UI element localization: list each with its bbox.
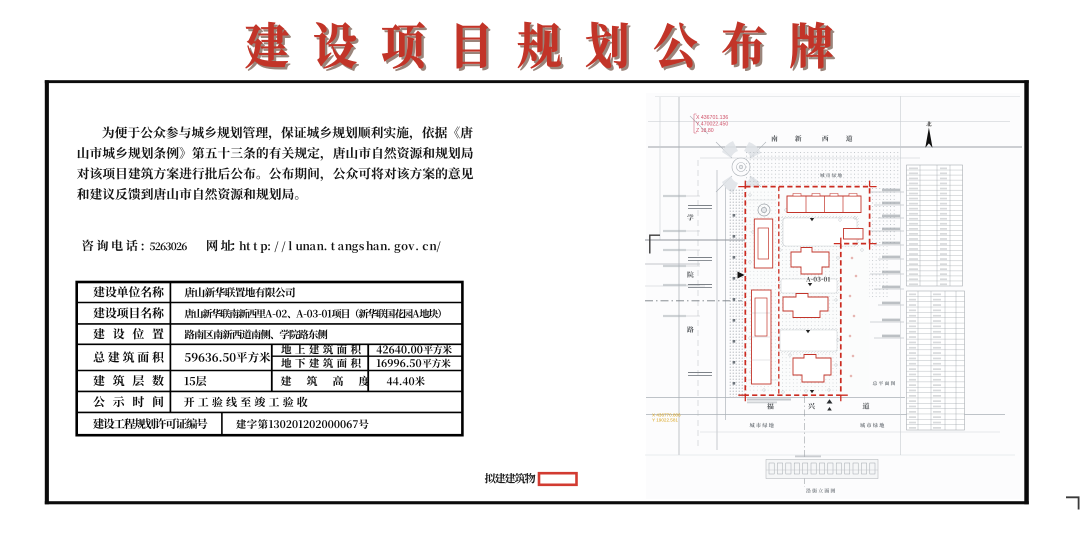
svg-text:Z 18.80: Z 18.80 xyxy=(696,128,714,134)
svg-text:Y 470022.450: Y 470022.450 xyxy=(696,121,728,127)
svg-text:X 436701.136: X 436701.136 xyxy=(696,115,728,121)
svg-text:Y 19022.581: Y 19022.581 xyxy=(652,418,678,423)
